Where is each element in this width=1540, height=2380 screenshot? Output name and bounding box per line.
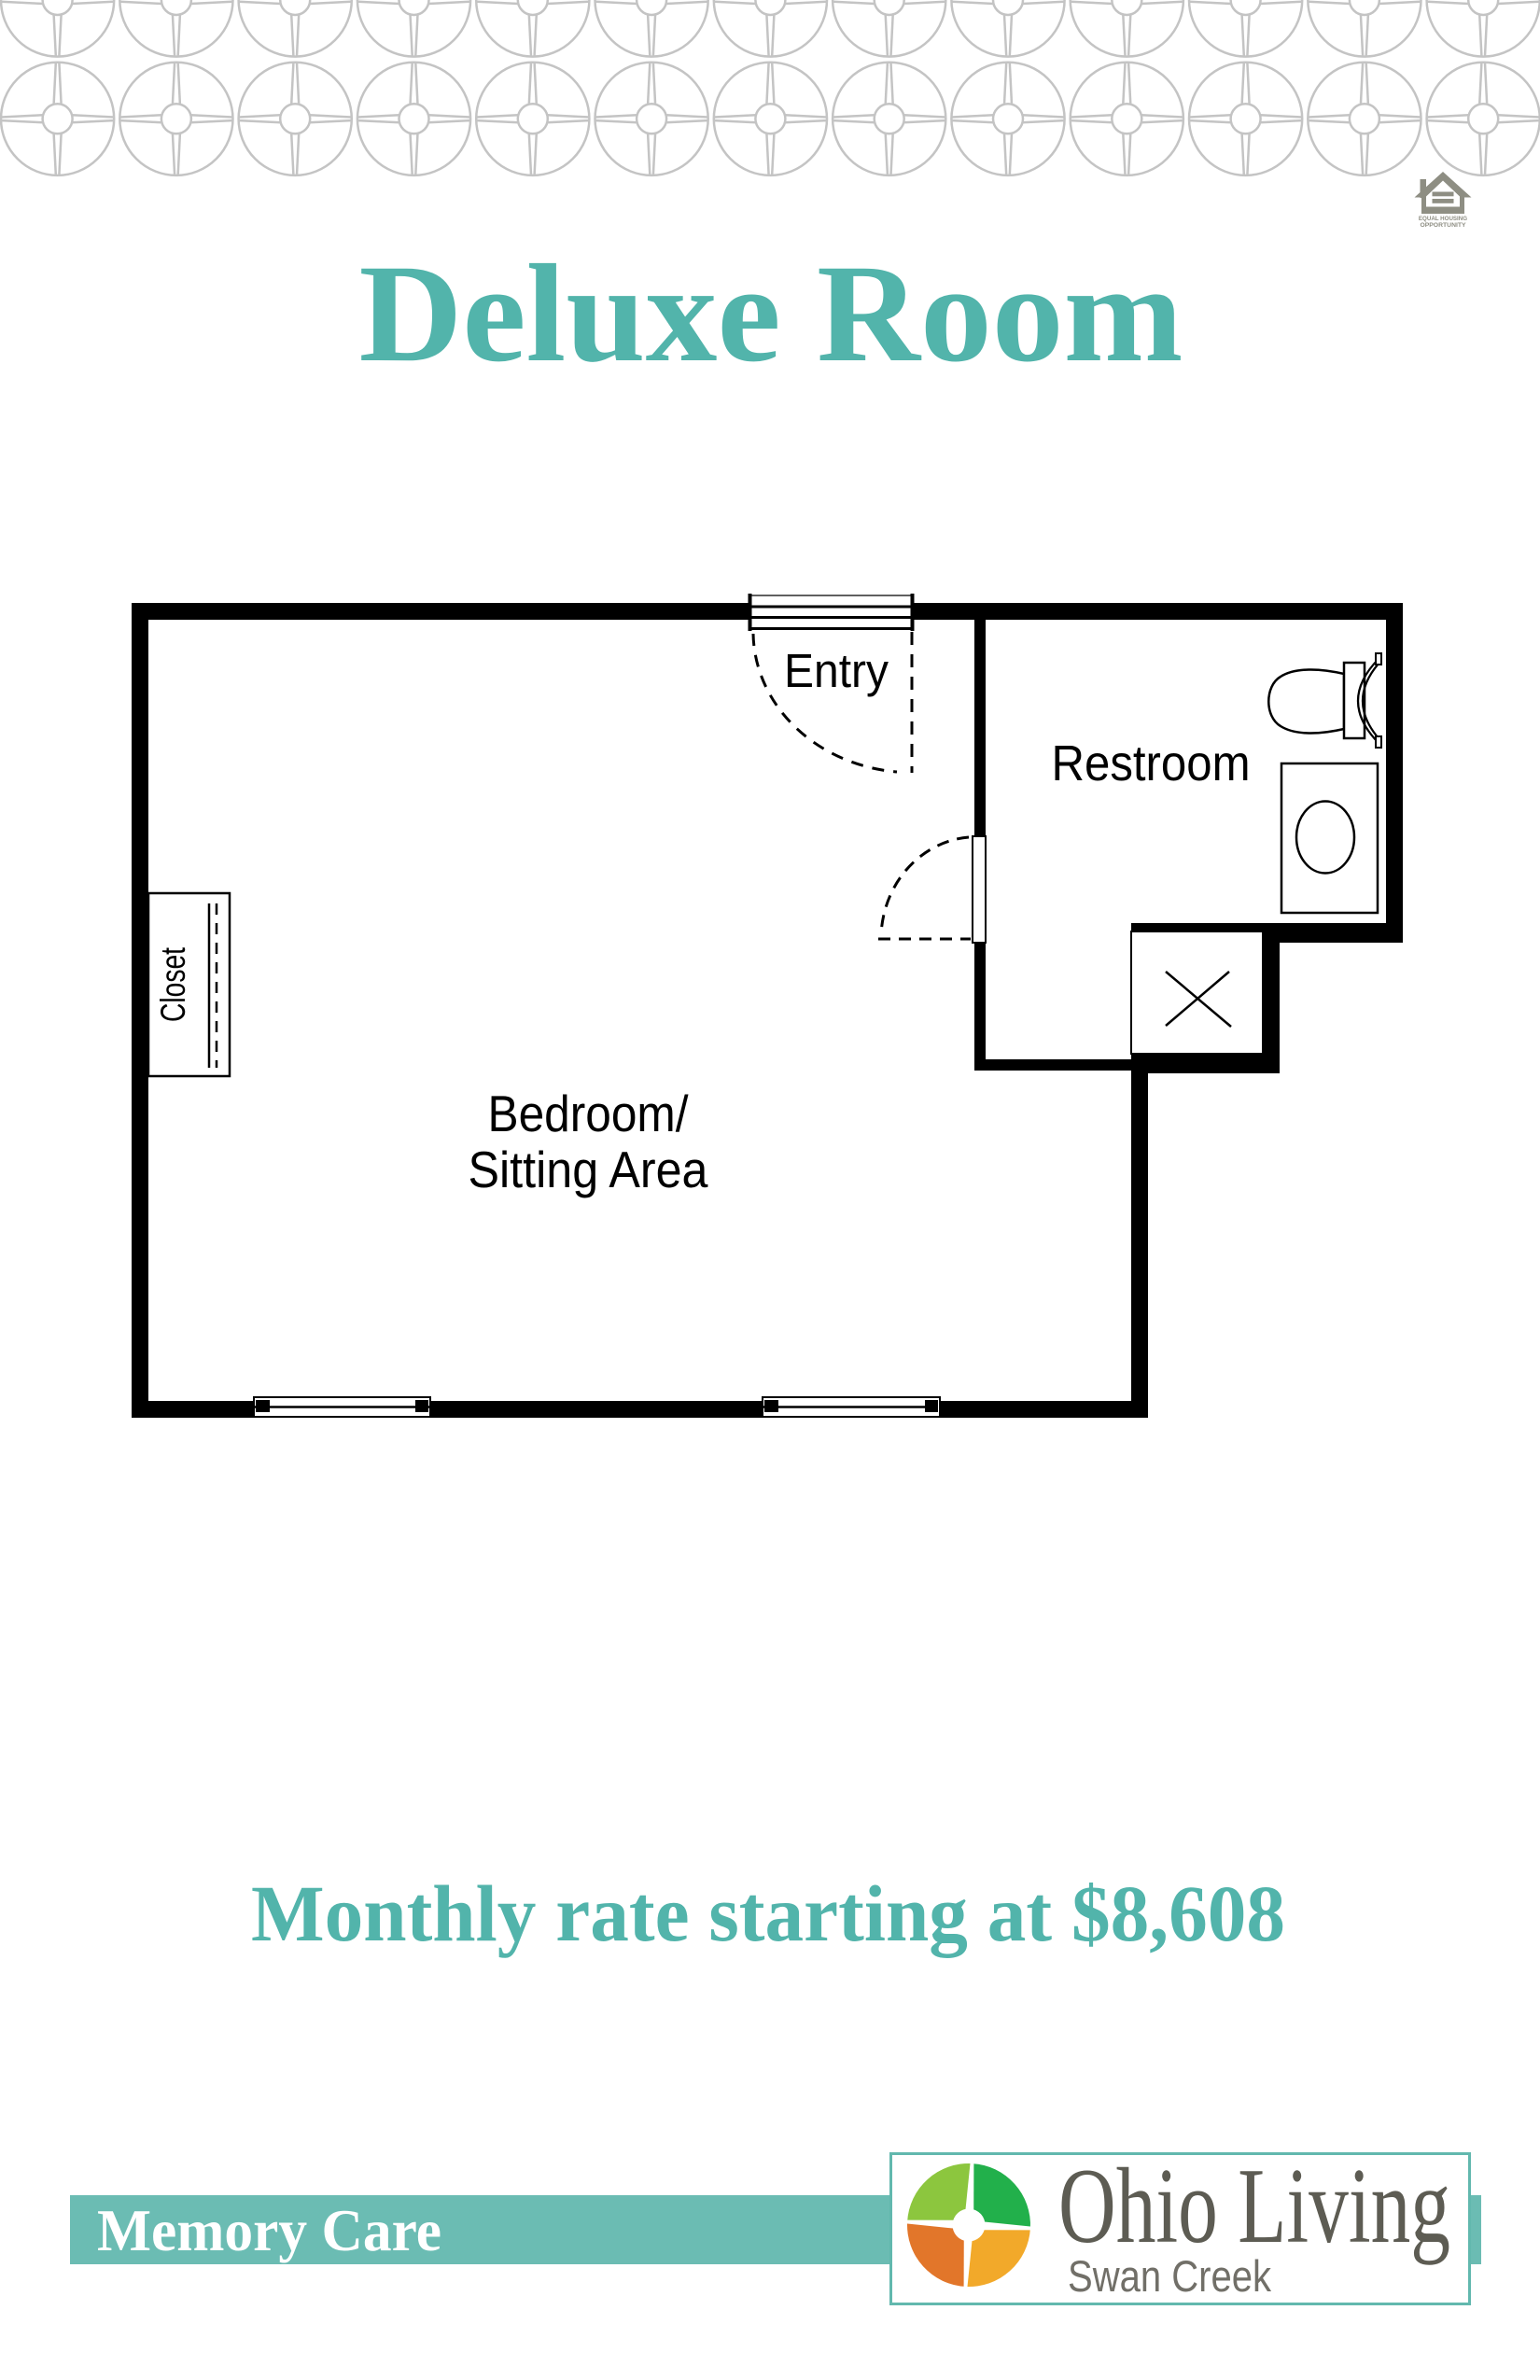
svg-text:Monthly rate starting at $8,60: Monthly rate starting at $8,608: [251, 1869, 1285, 1958]
svg-text:Deluxe Room: Deluxe Room: [359, 236, 1183, 391]
svg-text:Closet: Closet: [154, 946, 192, 1022]
svg-text:Sitting Area: Sitting Area: [469, 1141, 708, 1198]
svg-text:Swan Creek: Swan Creek: [1068, 2251, 1271, 2301]
svg-text:Bedroom/: Bedroom/: [488, 1085, 690, 1142]
svg-text:Memory Care: Memory Care: [97, 2197, 441, 2263]
svg-text:Entry: Entry: [784, 644, 889, 697]
svg-text:Restroom: Restroom: [1052, 735, 1251, 791]
svg-text:Ohio Living: Ohio Living: [1058, 2147, 1450, 2266]
svg-text:EQUAL HOUSING: EQUAL HOUSING: [1419, 216, 1467, 222]
svg-text:OPPORTUNITY: OPPORTUNITY: [1420, 222, 1466, 229]
